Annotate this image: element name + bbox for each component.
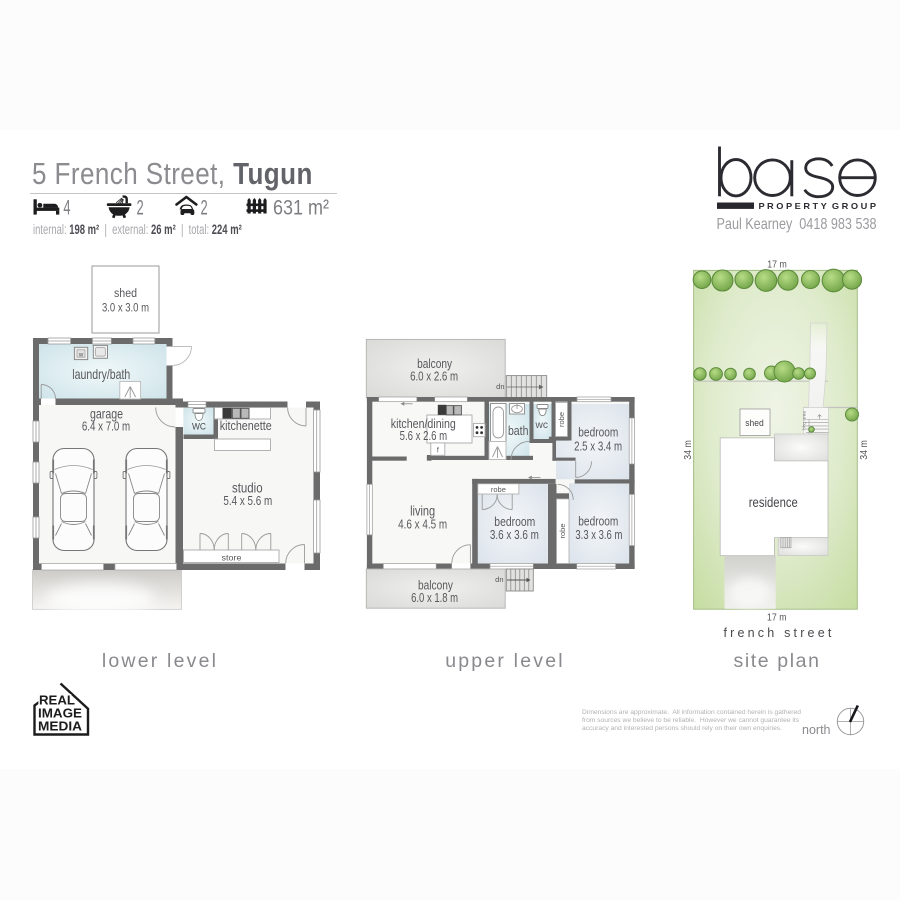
svg-text:3.3 x 3.6 m: 3.3 x 3.6 m [575,528,622,542]
svg-text:shed: shed [745,418,764,429]
svg-text:living: living [410,504,435,519]
svg-text:laundry/bath: laundry/bath [72,366,130,382]
svg-text:P R O P E R T Y G R O U P: P R O P E R T Y G R O U P [759,202,877,211]
svg-text:MEDIA: MEDIA [38,719,82,734]
svg-text:3.0 x 3.0 m: 3.0 x 3.0 m [102,303,149,315]
svg-text:5.4 x 5.6 m: 5.4 x 5.6 m [223,493,272,508]
svg-text:shed: shed [114,288,137,300]
svg-text:f: f [437,448,439,455]
svg-text:Paul Kearney 0418 983 538: Paul Kearney 0418 983 538 [717,216,877,233]
svg-text:robe: robe [491,485,506,494]
svg-text:bath: bath [508,424,529,438]
svg-text:17 m: 17 m [767,259,787,271]
svg-text:bedroom: bedroom [578,425,618,440]
svg-text:robe: robe [558,524,567,539]
svg-text:6.0 x 2.6 m: 6.0 x 2.6 m [410,369,458,383]
svg-text:bedroom: bedroom [494,514,535,529]
svg-text:2: 2 [201,197,208,220]
svg-text:WC: WC [192,422,206,433]
svg-text:store: store [222,552,242,562]
svg-text:north: north [802,723,831,737]
svg-text:residence: residence [749,495,798,510]
svg-text:6.4 x 7.0 m: 6.4 x 7.0 m [82,418,130,433]
svg-text:kitchenette: kitchenette [220,418,272,433]
svg-text:bbq area: bbq area [801,411,807,430]
svg-text:4.6 x 4.5 m: 4.6 x 4.5 m [398,517,447,531]
svg-text:34 m: 34 m [858,440,870,460]
svg-text:5.6 x 2.6 m: 5.6 x 2.6 m [400,429,448,443]
svg-text:17 m: 17 m [767,612,787,624]
svg-text:robe: robe [557,412,566,427]
svg-text:631 m²: 631 m² [273,197,329,220]
svg-text:2.5 x 3.4 m: 2.5 x 3.4 m [574,439,622,453]
svg-text:dn: dn [495,575,503,584]
svg-text:6.0 x 1.8 m: 6.0 x 1.8 m [411,591,458,605]
svg-text:w: w [78,353,84,359]
svg-text:3.6 x 3.6 m: 3.6 x 3.6 m [490,528,539,542]
svg-text:dn: dn [496,382,504,391]
svg-text:bedroom: bedroom [578,514,618,529]
svg-text:4: 4 [63,197,70,220]
svg-text:34 m: 34 m [682,440,694,460]
svg-text:wc: wc [535,419,548,431]
svg-text:2: 2 [137,197,144,220]
